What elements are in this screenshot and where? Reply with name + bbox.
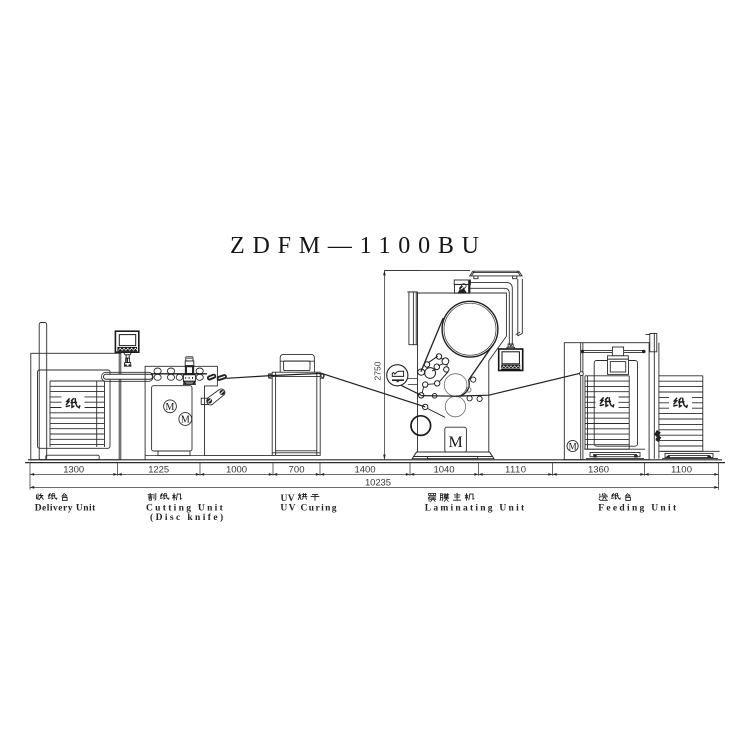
svg-text:Delivery Unit: Delivery Unit [35, 504, 96, 514]
svg-text:2750: 2750 [374, 361, 383, 381]
svg-text:1300: 1300 [63, 465, 84, 476]
svg-text:Laminating Unit: Laminating Unit [425, 504, 527, 514]
svg-text:1100: 1100 [671, 465, 692, 476]
svg-text:1400: 1400 [355, 465, 376, 476]
svg-text:1000: 1000 [226, 465, 247, 476]
svg-text:700: 700 [289, 465, 305, 476]
svg-text:1110: 1110 [505, 465, 526, 476]
svg-text:Feeding Unit: Feeding Unit [598, 504, 678, 514]
svg-text:1040: 1040 [434, 465, 455, 476]
svg-text:M: M [569, 441, 577, 451]
svg-text:M: M [166, 402, 175, 413]
svg-text:UV Curing: UV Curing [280, 504, 338, 514]
svg-text:M: M [448, 434, 462, 451]
svg-text:UV: UV [281, 494, 296, 504]
svg-text:Cutting Unit: Cutting Unit [146, 504, 225, 514]
svg-text:10235: 10235 [365, 478, 391, 489]
svg-text:M: M [181, 415, 190, 426]
svg-text:(Disc knife): (Disc knife) [150, 512, 226, 523]
svg-text:1360: 1360 [588, 465, 609, 476]
svg-text:1225: 1225 [148, 465, 169, 476]
